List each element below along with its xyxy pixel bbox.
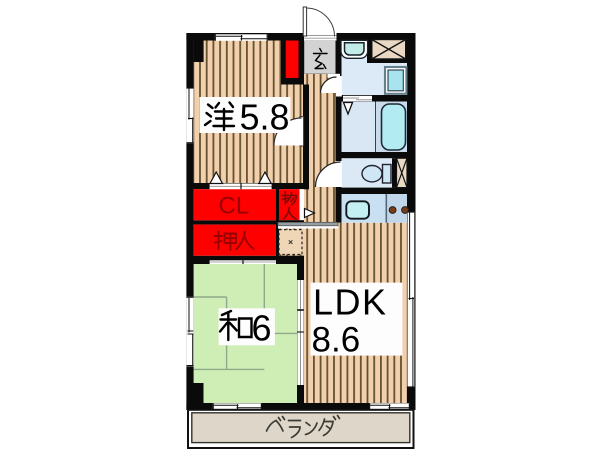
svg-text:5.8: 5.8 bbox=[240, 97, 290, 138]
svg-text:LDK: LDK bbox=[313, 282, 388, 323]
svg-text:6: 6 bbox=[252, 308, 272, 349]
svg-text:8.6: 8.6 bbox=[312, 321, 361, 360]
svg-text:CL: CL bbox=[219, 193, 250, 220]
